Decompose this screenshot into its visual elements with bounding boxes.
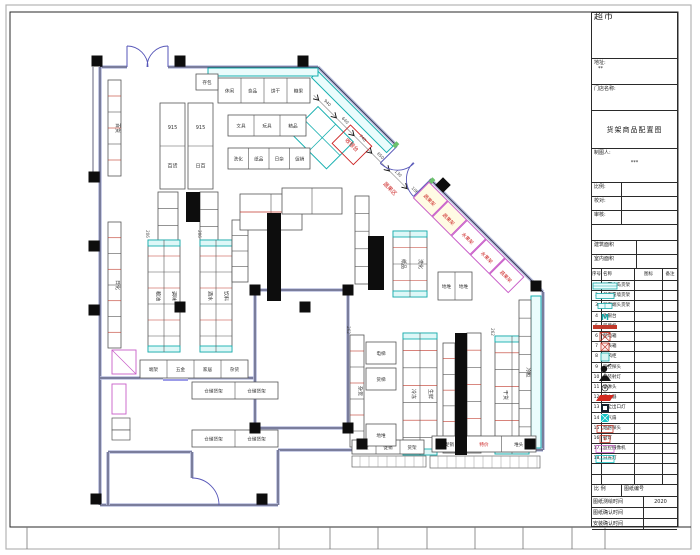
gondola-label: 洗化: [417, 259, 424, 269]
legend-cell: [663, 322, 677, 331]
footer-cell: 图纸测绘时间: [592, 497, 644, 507]
column: [89, 305, 100, 316]
drafter-cell: 制图人: ***: [592, 149, 677, 183]
gondola-label: 干货: [502, 390, 509, 400]
solid-block: [186, 192, 200, 222]
gondola-label: 冷冻: [410, 389, 417, 399]
legend-row: [592, 475, 677, 485]
title-block: 超市 地址: ** 门店名称: 货架商品配置图 制图人: *** 比例: 校对:…: [591, 12, 678, 527]
store-name-label: 门店名称:: [594, 86, 675, 92]
column: [257, 494, 268, 505]
column: [175, 302, 186, 313]
shelf-row-label: 地堆: [442, 283, 452, 290]
shelf-row-label: 存包: [202, 79, 212, 86]
column: [89, 241, 100, 252]
column: [298, 56, 309, 67]
column: [357, 439, 368, 450]
indoor-area-label: 室内面积: [592, 255, 637, 268]
side-dimension: 206: [145, 230, 150, 238]
legend-cell: [635, 413, 663, 422]
shelf-row-label: 促销: [295, 156, 305, 163]
scale-cell: 比例:: [592, 183, 677, 197]
legend-cell: [663, 424, 677, 433]
legend-cell: [663, 301, 677, 310]
building-area-label: 建筑面积: [592, 241, 637, 254]
column: [91, 494, 102, 505]
shelf-row-label: 饼干: [271, 88, 281, 95]
shelf-row-label: 货架: [407, 444, 417, 451]
wall-shelf-strip: [208, 68, 318, 76]
check-label: 校对:: [592, 197, 622, 210]
legend-row: 13安全出口灯: [592, 403, 677, 413]
empty-cell: [592, 225, 677, 241]
shelf-row-label: 端架: [149, 366, 159, 373]
footer-cell: 2020: [644, 497, 677, 507]
shelf-row-label: 电梯: [376, 350, 386, 357]
legend-row: 7电表箱: [592, 342, 677, 352]
footer-cell: [644, 508, 677, 518]
produce-area-label: 蔬果区: [381, 180, 399, 198]
gondola-label: 纸品: [400, 259, 407, 269]
legend-cell: [592, 475, 602, 484]
legend-header: 序号名称图标备注: [592, 269, 677, 281]
shelf-row-label: 文具: [236, 123, 246, 130]
shelf-row-label: 糖果: [294, 88, 304, 95]
legend-row: 8冷风柜: [592, 352, 677, 362]
legend-row: 17监控摄像机: [592, 444, 677, 454]
drafter-label: 制图人:: [594, 150, 675, 156]
legend-cell: [663, 434, 677, 443]
shelf-row-label: 特价: [479, 441, 489, 448]
legend-cell: [602, 464, 635, 473]
legend-row: 6配电箱: [592, 332, 677, 342]
legend-row: 14排气扇: [592, 413, 677, 423]
store-name-cell: 门店名称:: [592, 85, 677, 111]
shelf-row-label: 货梯: [376, 376, 386, 383]
review-label: 审核:: [592, 211, 622, 224]
legend-cell: [635, 332, 663, 341]
shelf-row-label: 地堆: [459, 283, 469, 290]
legend-cell: [635, 383, 663, 392]
footer-header: 比 例 图纸编号: [592, 485, 677, 497]
scale-label: 比例:: [592, 183, 622, 196]
legend-cell: [663, 312, 677, 321]
address-value: **: [594, 66, 675, 72]
column: [531, 281, 542, 292]
footer-row: 图纸确认时间: [592, 508, 677, 519]
column: [343, 285, 354, 296]
walkway: [430, 456, 540, 468]
shelf-row-label: 仓储货架: [247, 436, 266, 443]
legend-cell: [635, 281, 663, 290]
shelf-row-label: 仓储货架: [247, 388, 266, 395]
gondola-label: 百货: [114, 123, 121, 133]
shelf-row-label: 杂货: [230, 366, 240, 373]
legend-cell: [663, 403, 677, 412]
legend-row: 1双面中岛货架: [592, 281, 677, 291]
gondola-label: 酒水: [207, 291, 214, 301]
drafter-value: ***: [594, 160, 675, 166]
legend-cell: [635, 434, 663, 443]
legend-cell: [635, 322, 663, 331]
footer-row: 安装确认时间: [592, 519, 677, 530]
column: [89, 172, 100, 183]
legend-cell: [663, 464, 677, 473]
gondola-label: 百货: [167, 163, 177, 170]
gondola-label: 粮油: [155, 291, 162, 301]
legend-cell: [663, 363, 677, 372]
legend-row: 12灭火器: [592, 393, 677, 403]
drawing-sheet: 收银台蔬果区9406407406501301060蔬果架蔬果架水果架水果架蔬果架…: [0, 0, 700, 555]
walkway: [352, 456, 426, 467]
legend-cell: [635, 363, 663, 372]
legend-row: 18日光灯: [592, 454, 677, 464]
legend-cell: [635, 342, 663, 351]
legend-cell: [663, 281, 677, 290]
shelf-row-label: 五金: [176, 366, 186, 373]
legend-row: 2单面靠墙货架: [592, 291, 677, 301]
legend-cell: [663, 332, 677, 341]
legend-row: 10吊装射灯: [592, 373, 677, 383]
legend-row: 5风幕机: [592, 322, 677, 332]
footer-sheetno-label: 图纸编号: [622, 485, 677, 496]
legend-cell: [635, 444, 663, 453]
legend-header-cell: 名称: [602, 269, 635, 280]
drawing-title: 货架商品配置图: [607, 127, 663, 133]
legend-row: 11喷淋头: [592, 383, 677, 393]
footer-row: 图纸测绘时间2020: [592, 497, 677, 508]
entry-door-arc: [127, 46, 148, 67]
legend-cell: [663, 454, 677, 463]
column: [175, 56, 186, 67]
column: [343, 423, 354, 434]
legend-row: 4收银台M: [592, 312, 677, 322]
check-cell: 校对:: [592, 197, 677, 211]
shelf-row-label: 精品: [288, 123, 298, 130]
shelf-row-label: 纸品: [254, 156, 264, 163]
legend-cell: [635, 475, 663, 484]
legend-cell: [663, 352, 677, 361]
indoor-area-cell: 室内面积: [592, 255, 677, 269]
legend-cell: [663, 475, 677, 484]
gondola-shelf: [355, 196, 369, 284]
column: [436, 439, 447, 450]
legend-cell: [635, 454, 663, 463]
gondola-label: 日化: [114, 280, 121, 290]
shelf-row-label: 洗化: [234, 156, 244, 163]
footer-scale-label: 比 例: [592, 485, 622, 496]
gondola-label: 915: [196, 125, 206, 131]
legend-cell: [663, 291, 677, 300]
solid-block: [267, 213, 281, 301]
legend-cell: [635, 464, 663, 473]
address-cell: 地址: **: [592, 59, 677, 85]
legend-row: [592, 464, 677, 474]
legend-cell: [663, 413, 677, 422]
legend-cell: [663, 393, 677, 402]
shelf-row-label: 堆头: [514, 441, 524, 448]
gondola-label: 调味: [171, 291, 178, 301]
column: [525, 439, 536, 450]
shelf-row-label: 家居: [203, 366, 213, 373]
legend-cell: [635, 393, 663, 402]
legend-header-cell: 备注: [663, 269, 677, 280]
legend-row: 15烟感探头: [592, 424, 677, 434]
shelf-row-label: 玩具: [262, 124, 272, 130]
gondola-label: 日百: [195, 164, 205, 170]
column: [300, 302, 311, 313]
drawing-title-cell: 货架商品配置图: [592, 111, 677, 149]
side-dimension: 206: [197, 230, 202, 238]
gondola-shelf: [467, 333, 481, 453]
legend-cell: [592, 464, 602, 473]
gondola-label: 杂货: [357, 386, 364, 396]
legend-cell: [635, 352, 663, 361]
legend-header-cell: 图标: [635, 269, 663, 280]
shelf-row-label: 仓储货架: [204, 388, 223, 395]
column: [250, 423, 261, 434]
legend-cell: [635, 291, 663, 300]
shelf-row-label: 地堆: [376, 432, 386, 439]
gondola-label: 生鲜: [427, 389, 434, 399]
room-door-arc: [192, 478, 219, 505]
side-dimension: 262: [346, 326, 351, 334]
legend-cell: [663, 444, 677, 453]
legend-cell: [663, 383, 677, 392]
legend-cell: [663, 373, 677, 382]
footer-cell: 安装确认时间: [592, 519, 644, 529]
legend-cell: [602, 475, 635, 484]
gondola-label: 915: [168, 125, 178, 131]
legend-table: 1双面中岛货架2单面靠墙货架3双面端头货架4收银台M5风幕机6配电箱7电表箱8冷…: [592, 281, 677, 485]
gondola-label: 饮料: [223, 291, 230, 301]
legend-cell: M: [635, 312, 663, 321]
shelf-row-label: 食品: [248, 88, 258, 95]
legend-row: 3双面端头货架: [592, 301, 677, 311]
side-dimension: 262: [490, 328, 495, 336]
footer-cell: 图纸确认时间: [592, 508, 644, 518]
legend-cell: [635, 301, 663, 310]
store-type: 超市: [594, 13, 614, 22]
building-area-cell: 建筑面积: [592, 241, 677, 255]
legend-row: 16射灯: [592, 434, 677, 444]
gondola-label: 冷柜: [525, 367, 532, 377]
shelf-row-label: 日杂: [275, 157, 285, 163]
gondola-shelf: [158, 192, 178, 242]
legend-cell: [635, 403, 663, 412]
column: [250, 285, 261, 296]
legend-cell: [663, 342, 677, 351]
entry-door-arc: [147, 46, 168, 67]
legend-cell: [635, 424, 663, 433]
legend-cell: [635, 373, 663, 382]
solid-block: [368, 236, 384, 290]
solid-block: [455, 333, 467, 455]
wall-shelf-strip: [531, 296, 541, 448]
footer-rows: 图纸测绘时间2020图纸确认时间安装确认时间: [592, 497, 677, 530]
column: [92, 56, 103, 67]
store-type-cell: 超市: [592, 13, 677, 59]
legend-header-cell: 序号: [592, 269, 602, 280]
review-cell: 审核:: [592, 211, 677, 225]
shelf-row-label: 仓储货架: [204, 436, 223, 443]
shelf-row-label: 休闲: [225, 88, 235, 95]
footer-cell: [644, 519, 677, 529]
legend-row: 9监控探头: [592, 363, 677, 373]
